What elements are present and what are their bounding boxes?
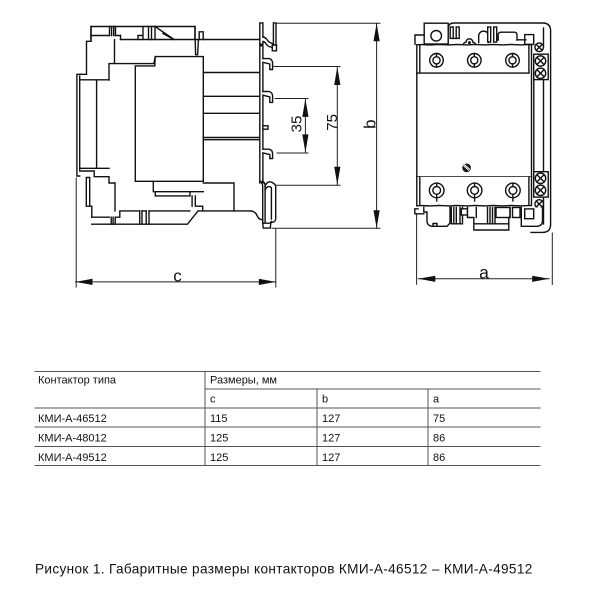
svg-text:125: 125 — [210, 433, 228, 445]
svg-text:127: 127 — [322, 452, 340, 464]
svg-text:КМИ-А-49512: КМИ-А-49512 — [38, 452, 107, 464]
svg-text:c: c — [173, 267, 182, 286]
svg-text:a: a — [433, 394, 440, 406]
svg-text:Рисунок 1. Габаритные размеры: Рисунок 1. Габаритные размеры контакторо… — [35, 562, 533, 577]
svg-text:125: 125 — [210, 452, 228, 464]
svg-text:Контактор типа: Контактор типа — [38, 375, 117, 387]
svg-text:c: c — [210, 394, 216, 406]
svg-text:35: 35 — [288, 116, 305, 133]
svg-text:115: 115 — [210, 413, 228, 425]
svg-text:86: 86 — [433, 452, 445, 464]
svg-text:b: b — [361, 119, 380, 128]
svg-text:75: 75 — [324, 114, 341, 131]
svg-text:75: 75 — [433, 413, 445, 425]
svg-text:b: b — [322, 394, 328, 406]
svg-text:КМИ-А-48012: КМИ-А-48012 — [38, 433, 107, 445]
svg-text:Размеры, мм: Размеры, мм — [210, 375, 277, 387]
svg-text:a: a — [479, 262, 489, 282]
svg-text:127: 127 — [322, 413, 340, 425]
svg-text:КМИ-А-46512: КМИ-А-46512 — [38, 413, 107, 425]
svg-text:86: 86 — [433, 433, 445, 445]
svg-text:127: 127 — [322, 433, 340, 445]
